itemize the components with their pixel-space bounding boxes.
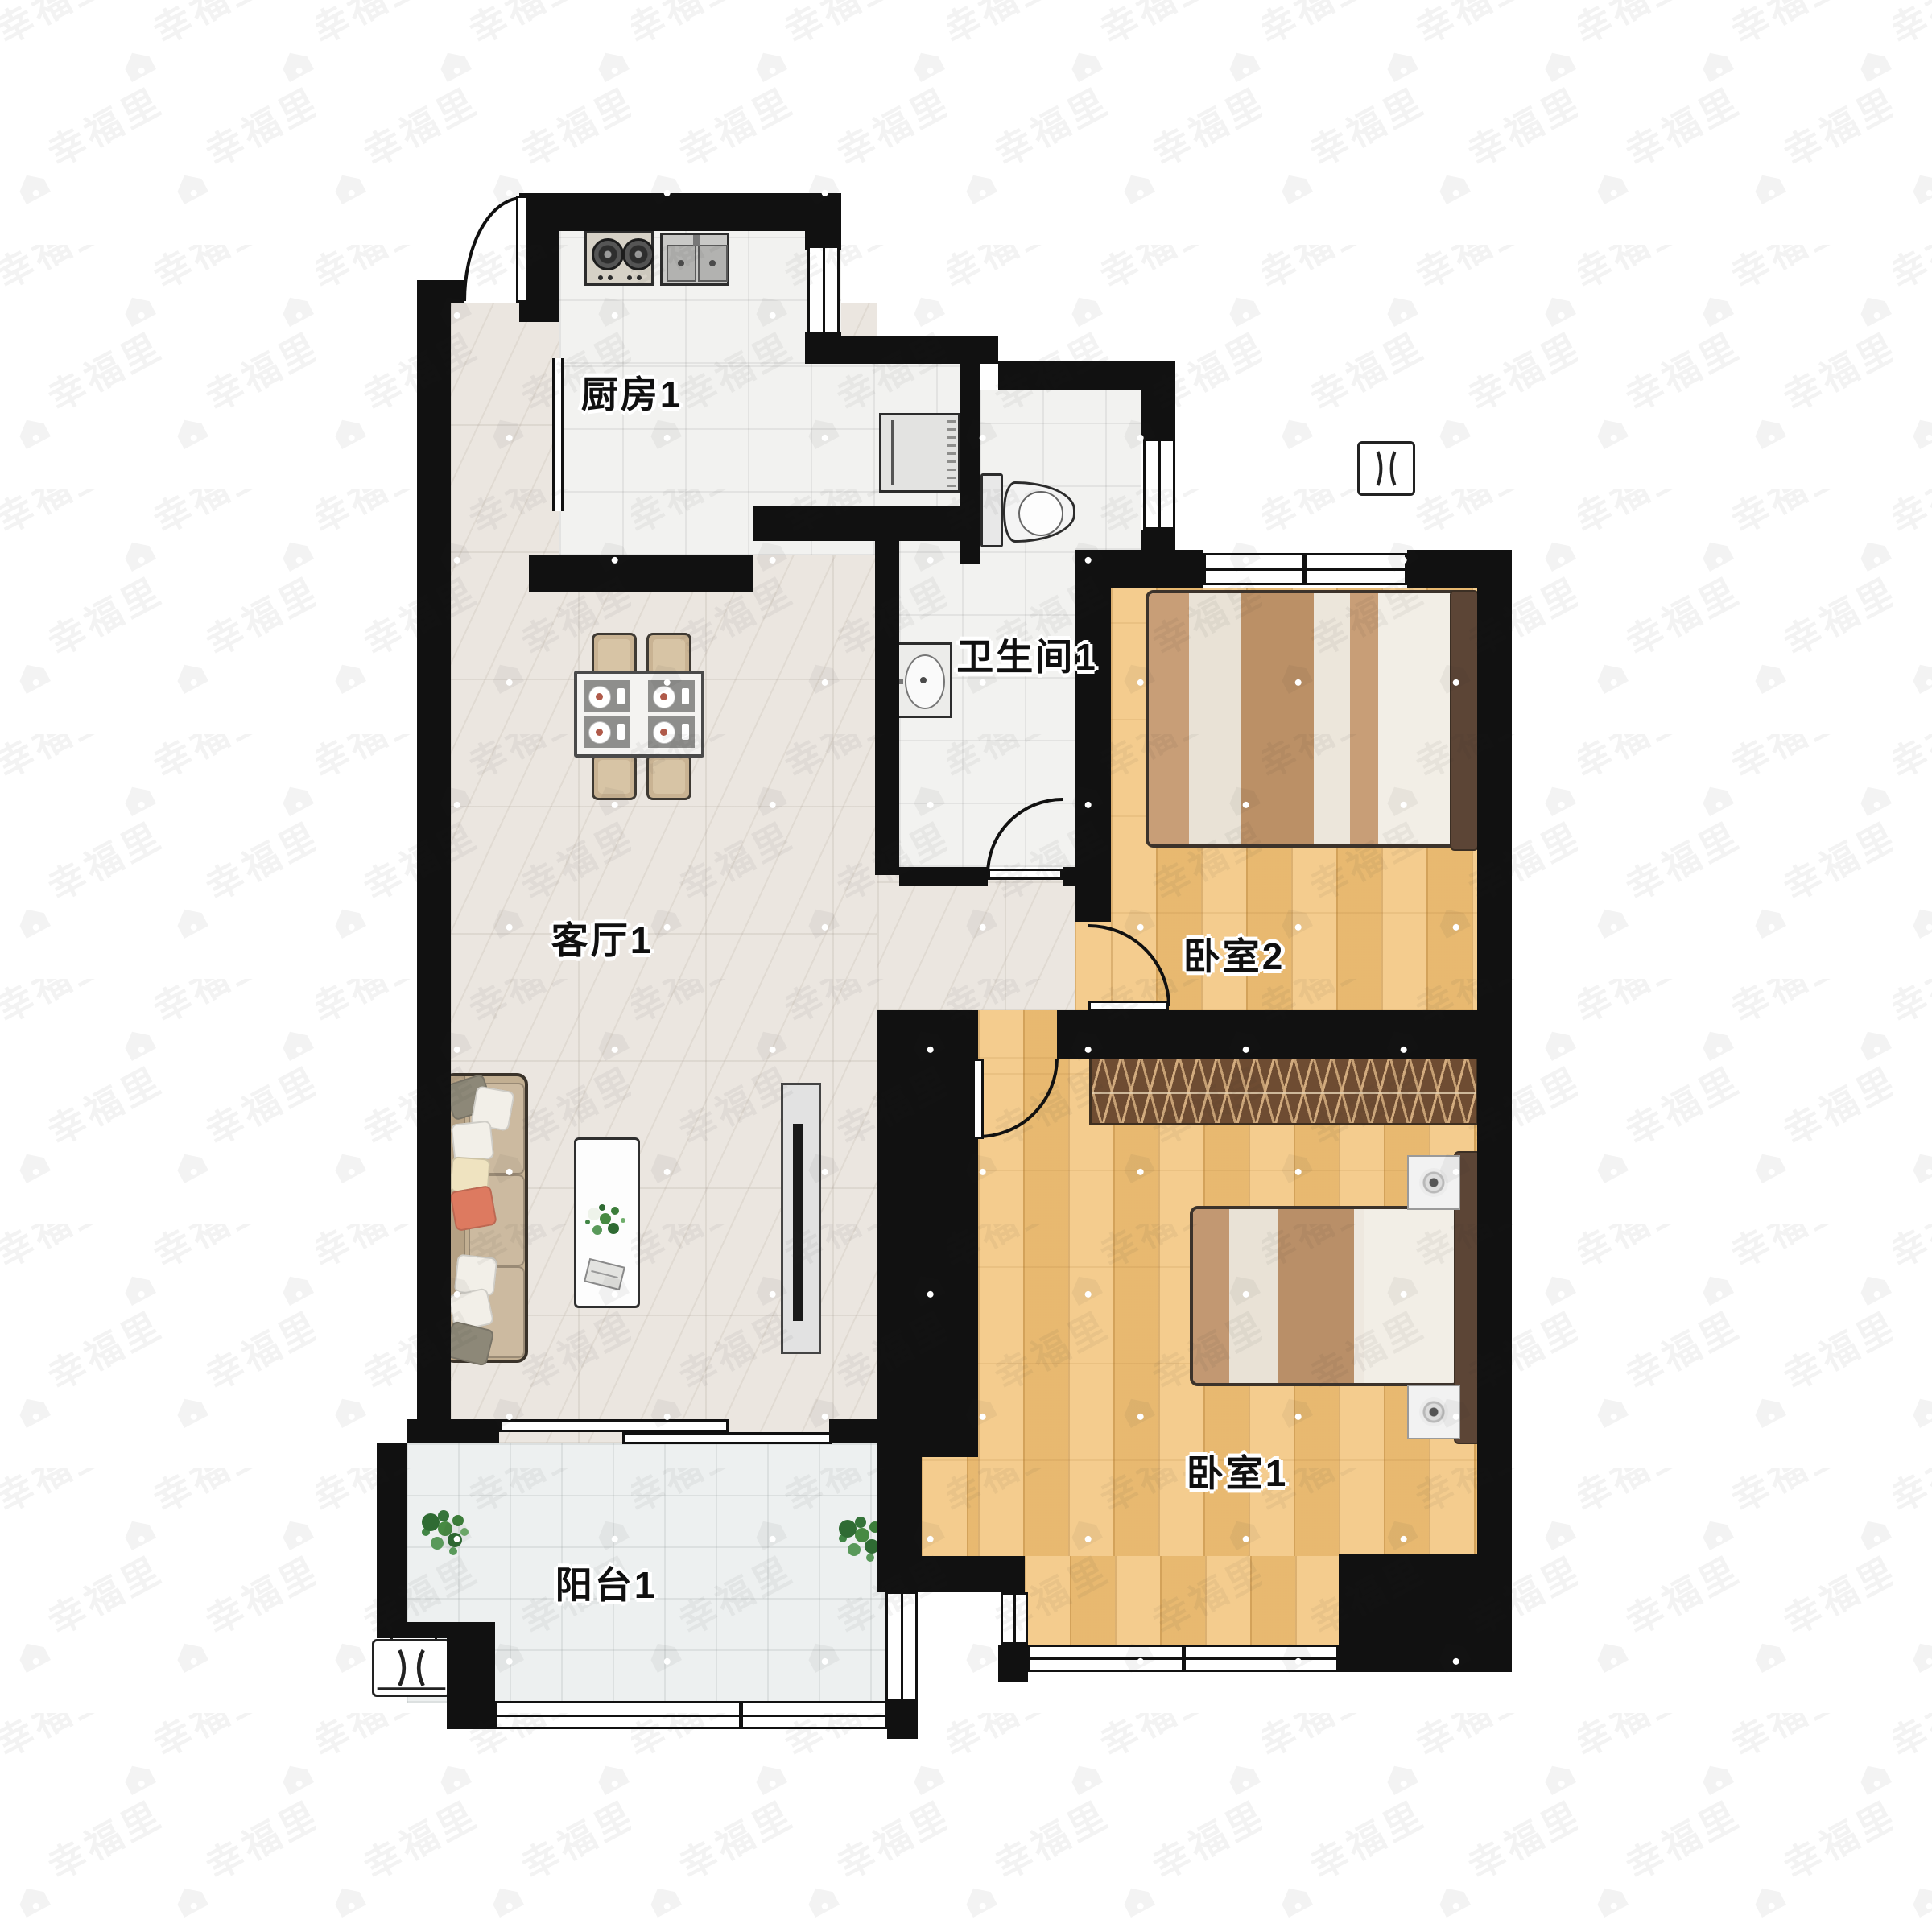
window-mullion (1182, 1645, 1186, 1672)
door-arcs (0, 0, 1932, 1932)
window-kitchen (807, 246, 840, 334)
sliding-door-panel (499, 1419, 729, 1432)
window-bedroom1-side (1001, 1592, 1028, 1645)
floor-plan-canvas: 幸福里 幸福里 幸福里 幸福里 厨房1 卫生间1 卧室2 客厅1 卧室1 阳台1 (0, 0, 1932, 1932)
bedroom1-door-arc (978, 1059, 1057, 1137)
bedroom2-door-arc (1088, 926, 1169, 1006)
bathroom-door-arc (988, 799, 1063, 874)
window-mullion (1302, 553, 1307, 585)
entry-door-leaf (516, 196, 528, 303)
bedroom1-door-leaf (972, 1059, 984, 1139)
bedroom2-door-leaf (1088, 1001, 1169, 1012)
bathroom-door-leaf (988, 869, 1063, 880)
room-label-balcony: 阳台1 (555, 1556, 658, 1609)
entry-door-arc (464, 198, 522, 301)
window-bathroom (1143, 439, 1175, 530)
window-mullion (739, 1701, 743, 1729)
room-label-living: 客厅1 (551, 911, 654, 964)
window-balcony-side (885, 1591, 918, 1701)
room-label-bathroom: 卫生间1 (956, 628, 1098, 681)
room-label-bedroom2: 卧室2 (1183, 927, 1286, 980)
room-label-bedroom1: 卧室1 (1187, 1444, 1289, 1497)
sliding-door-panel (622, 1432, 832, 1444)
room-label-kitchen: 厨房1 (581, 365, 683, 419)
balcony-railing (495, 1701, 887, 1729)
